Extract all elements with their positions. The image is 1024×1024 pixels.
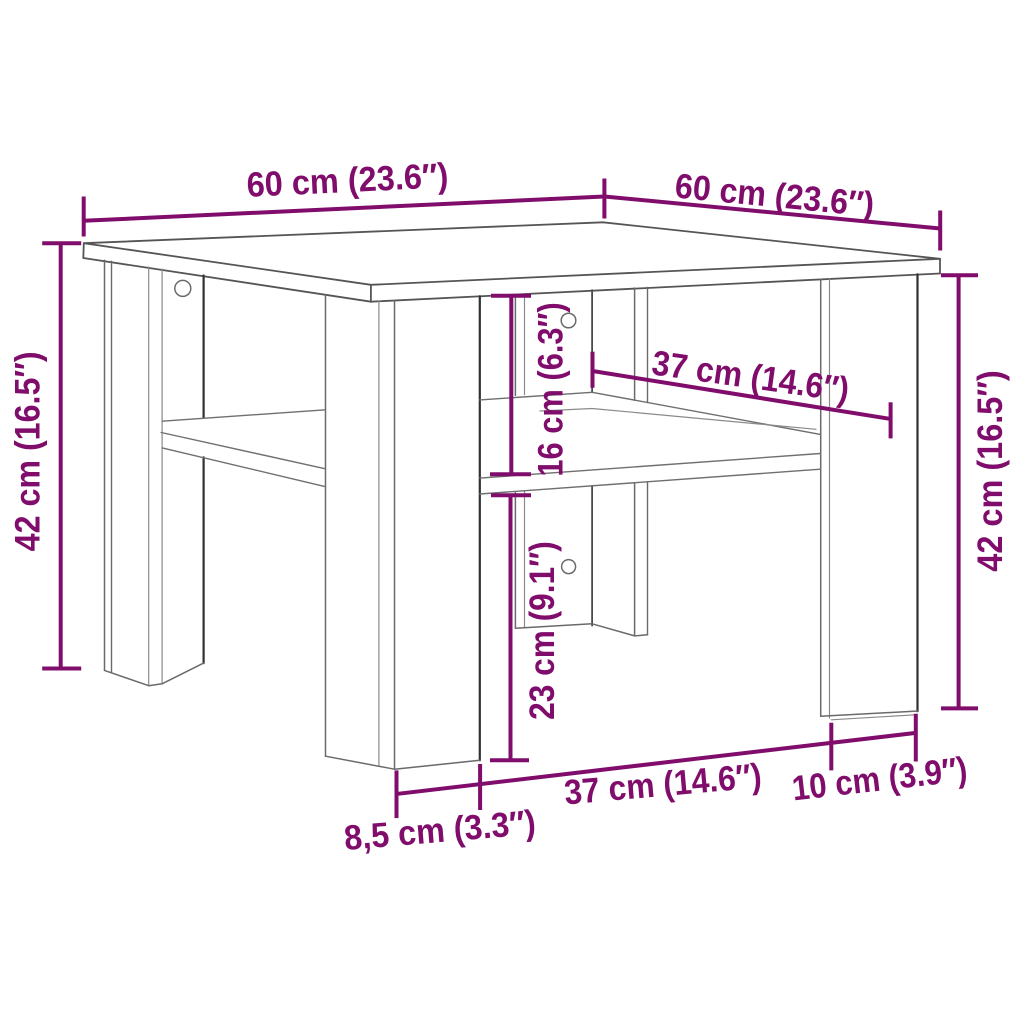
svg-text:42 cm (16.5″): 42 cm (16.5″) (971, 370, 1010, 571)
svg-text:42 cm (16.5″): 42 cm (16.5″) (9, 351, 47, 551)
svg-text:16 cm (6.3″): 16 cm (6.3″) (531, 302, 570, 476)
svg-text:23 cm (9.1″): 23 cm (9.1″) (524, 541, 563, 720)
